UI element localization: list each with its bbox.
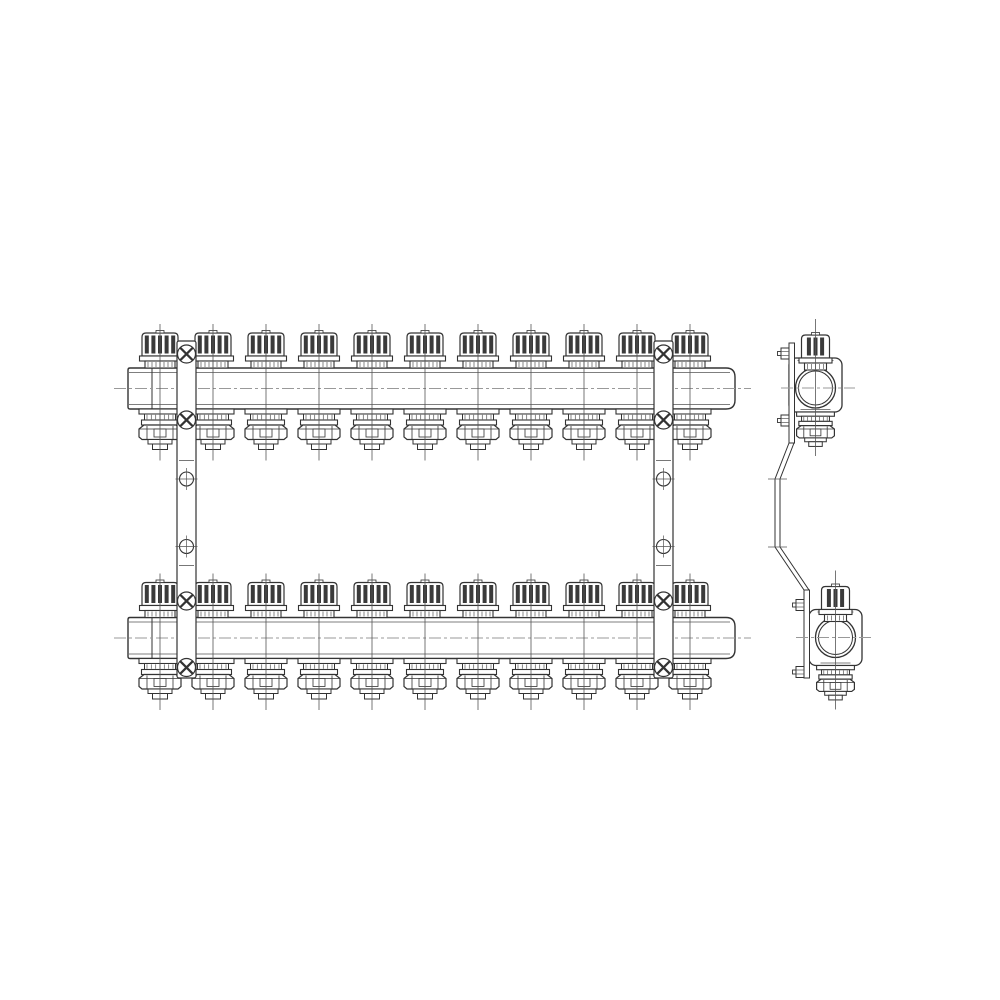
knurl-band xyxy=(271,585,275,603)
knurl-band xyxy=(277,336,281,354)
knurl-band xyxy=(695,336,699,354)
knurl-band xyxy=(575,585,579,603)
knurl-band xyxy=(257,336,261,354)
knurl-band xyxy=(522,585,526,603)
screw-head xyxy=(796,667,804,678)
knurl-band xyxy=(151,585,155,603)
side-view-top-manifold xyxy=(778,319,856,456)
manifold-drawing xyxy=(0,0,1000,1000)
knurl-band xyxy=(622,336,626,354)
screw-tip xyxy=(793,603,797,607)
knurl-band xyxy=(695,585,699,603)
knurl-band xyxy=(377,585,381,603)
bracket-screw-side xyxy=(793,600,805,611)
knurl-band xyxy=(569,585,573,603)
knurl-band xyxy=(171,336,175,354)
knurl-band xyxy=(383,585,387,603)
knurl-band xyxy=(277,585,281,603)
knurl-band xyxy=(589,585,593,603)
knurl-band xyxy=(642,585,646,603)
knurl-band xyxy=(324,585,328,603)
knurl-band xyxy=(171,585,175,603)
knurl-band xyxy=(357,336,361,354)
bracket-screw-side xyxy=(778,348,790,359)
knurl-band xyxy=(469,585,473,603)
knurl-band xyxy=(569,336,573,354)
knurl-band xyxy=(304,336,308,354)
knurl-band xyxy=(430,336,434,354)
knurl-band xyxy=(224,336,228,354)
knurl-band xyxy=(251,585,255,603)
knurl-band xyxy=(204,336,208,354)
knurl-band xyxy=(436,336,440,354)
knurl-band xyxy=(271,336,275,354)
knurl-band xyxy=(483,336,487,354)
knurl-band xyxy=(622,585,626,603)
knurl-band xyxy=(463,585,467,603)
knurl-band xyxy=(165,336,169,354)
knurl-band xyxy=(310,585,314,603)
knurl-band xyxy=(330,336,334,354)
knurl-band xyxy=(483,585,487,603)
knurl-band xyxy=(430,585,434,603)
front-view xyxy=(114,324,751,710)
knurl-band xyxy=(198,336,202,354)
knurl-band xyxy=(436,585,440,603)
knurl-band xyxy=(642,336,646,354)
knurl-band xyxy=(145,336,149,354)
knurl-band xyxy=(807,338,811,356)
knurl-band xyxy=(575,336,579,354)
knurl-band xyxy=(675,585,679,603)
knurl-band xyxy=(489,336,493,354)
knurl-band xyxy=(681,585,685,603)
bracket-strip xyxy=(654,341,673,678)
knurl-band xyxy=(257,585,261,603)
knurl-band xyxy=(165,585,169,603)
knurl-band xyxy=(410,336,414,354)
side-view xyxy=(768,319,874,710)
knurl-band xyxy=(595,585,599,603)
knurl-band xyxy=(204,585,208,603)
knurl-band xyxy=(820,338,824,356)
knurl-band xyxy=(363,585,367,603)
knurl-band xyxy=(536,585,540,603)
knurl-band xyxy=(827,589,831,607)
knurl-band xyxy=(469,336,473,354)
bracket-strap-edge xyxy=(775,443,804,590)
screw-tip xyxy=(778,352,782,356)
bracket-side-profile xyxy=(804,590,810,678)
knurl-band xyxy=(218,336,222,354)
knurl-band xyxy=(681,336,685,354)
knurl-band xyxy=(357,585,361,603)
knurl-band xyxy=(218,585,222,603)
screw-tip xyxy=(778,419,782,423)
knurl-band xyxy=(251,336,255,354)
knurl-band xyxy=(595,336,599,354)
knurl-band xyxy=(304,585,308,603)
knurl-band xyxy=(489,585,493,603)
knurl-band xyxy=(324,336,328,354)
knurl-band xyxy=(416,336,420,354)
knurl-band xyxy=(648,336,652,354)
screw-head xyxy=(781,348,789,359)
knurl-band xyxy=(701,585,705,603)
knurl-band xyxy=(701,336,705,354)
knurl-band xyxy=(330,585,334,603)
screw-tip xyxy=(793,670,797,674)
knurl-band xyxy=(840,589,844,607)
knurl-band xyxy=(151,336,155,354)
bracket-screw-side xyxy=(778,415,790,426)
bracket-screw-side xyxy=(793,667,805,678)
knurl-band xyxy=(377,336,381,354)
knurl-band xyxy=(198,585,202,603)
knurl-band xyxy=(383,336,387,354)
mounting-bracket xyxy=(653,341,675,678)
knurl-band xyxy=(542,585,546,603)
knurl-band xyxy=(310,336,314,354)
knurl-band xyxy=(536,336,540,354)
mounting-bracket xyxy=(176,341,198,678)
knurl-band xyxy=(675,336,679,354)
screw-head xyxy=(796,600,804,611)
knurl-band xyxy=(516,336,520,354)
knurl-band xyxy=(628,585,632,603)
bracket-strip xyxy=(177,341,196,678)
knurl-band xyxy=(522,336,526,354)
knurl-band xyxy=(416,585,420,603)
knurl-band xyxy=(628,336,632,354)
knurl-band xyxy=(145,585,149,603)
bracket-strap-edge xyxy=(780,443,809,590)
knurl-band xyxy=(463,336,467,354)
screw-head xyxy=(781,415,789,426)
knurl-band xyxy=(363,336,367,354)
knurl-band xyxy=(410,585,414,603)
knurl-band xyxy=(516,585,520,603)
knurl-band xyxy=(224,585,228,603)
knurl-band xyxy=(542,336,546,354)
bracket-side-profile xyxy=(789,343,795,443)
technical-drawing-canvas xyxy=(0,0,1000,1000)
knurl-band xyxy=(648,585,652,603)
knurl-band xyxy=(589,336,593,354)
side-view-bottom-manifold xyxy=(793,571,875,710)
